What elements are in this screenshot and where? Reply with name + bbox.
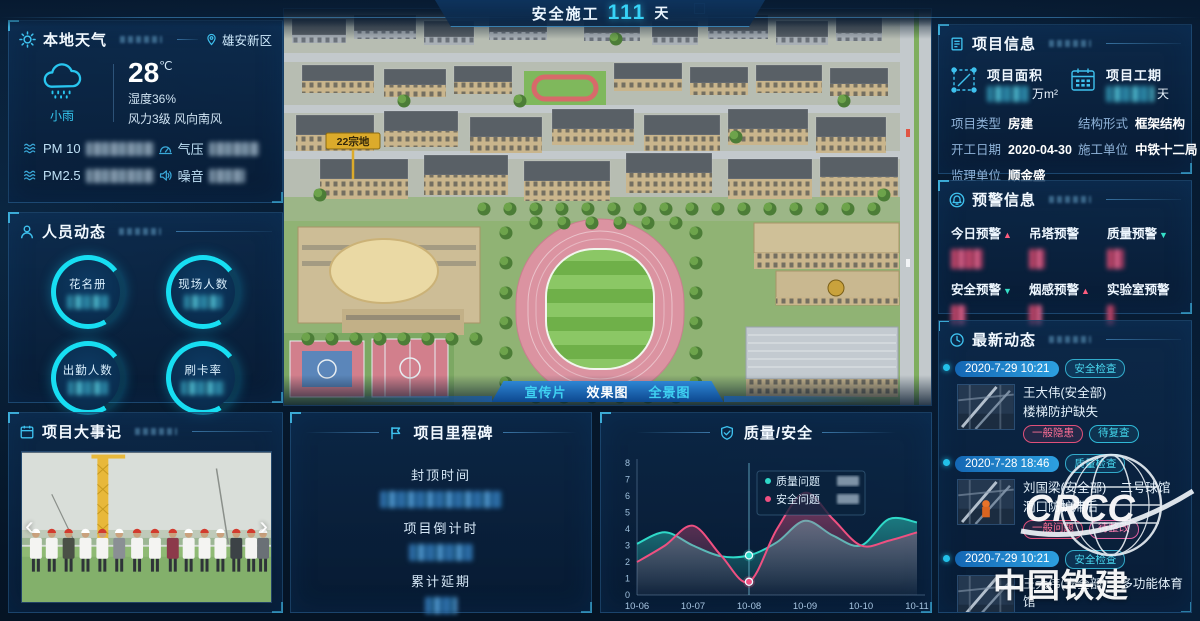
update-person: 刘国梁(安全部)二号球馆 [1023,479,1170,498]
milestone-title: 项目里程碑 [413,422,493,443]
metric-value-blurred [209,169,245,183]
svg-text:2: 2 [625,557,630,567]
stat-label: 花名册 [69,276,107,292]
flag-icon [388,425,404,441]
pressure-gauge-icon [158,141,173,156]
stat-value-blurred [1106,86,1154,102]
trend-up-icon: ▲ [1081,286,1090,296]
update-thumb-image [958,385,1014,429]
stat-unit: 万m² [1032,87,1058,101]
stat-circle-swipe-rate[interactable]: 刷卡率 [166,341,240,415]
svg-text:7: 7 [625,475,630,485]
milestone-value-blurred [425,597,457,614]
timeline-dot [943,364,950,371]
svg-text:22宗地: 22宗地 [337,135,370,148]
tab-promo-video[interactable]: 宣传片 [524,382,566,401]
stat-value-blurred [181,381,225,395]
update-date-badge: 2020-7-29 10:21 [955,551,1059,567]
top-bar: 安全施工 111 天 [0,0,1200,27]
warning-quality: 质量预警▼ [1107,223,1179,269]
tabbar-wing-right [724,396,874,402]
page-title: 安全施工 111 天 [435,0,765,27]
events-panel: 项目大事记 ‹ › [8,412,283,613]
sun-icon [19,31,36,48]
metric-label: 噪音 [178,166,204,185]
carousel-prev-button[interactable]: ‹ [25,513,34,539]
update-desc: 洞口防护滞后 [1023,498,1170,517]
personnel-panel: 人员动态 花名册 现场人数 出勤人数 刷卡率 [8,212,283,403]
milestone-value-blurred [380,491,502,508]
trend-up-icon: ▲ [1003,230,1012,240]
warnings-title: 预警信息 [972,189,1036,210]
warning-crane: 吊塔预警 [1029,223,1101,269]
update-location: 多功能体育馆 [1023,577,1183,610]
shield-check-icon [719,425,735,441]
stat-project-area: 项目面积 万m² [949,65,1062,103]
dashboard: 安全施工 111 天 [0,0,1200,621]
warning-today: 今日预警▲ [951,223,1023,269]
stat-value-blurred [184,295,222,309]
svg-text:10-07: 10-07 [681,601,705,612]
weather-panel: 本地天气 雄安新区 小雨 28℃ 湿度36% 风力3级 风向南风 [8,20,283,203]
title-unit: 天 [654,3,668,23]
trend-down-icon: ▼ [1159,230,1168,240]
stat-value-blurred [68,381,108,395]
stat-project-duration: 项目工期 天 [1068,65,1181,103]
milestone-label: 封顶时间 [411,465,471,484]
milestone-label: 累计延期 [411,571,471,590]
svg-text:4: 4 [625,524,630,534]
stat-value-blurred [987,86,1029,102]
update-desc: 楼梯防护缺失 [1023,403,1139,422]
update-type-badge: 安全检查 [1065,359,1125,378]
rain-cloud-icon [39,62,85,100]
person-icon [19,224,35,240]
update-photo[interactable] [957,575,1015,614]
warning-value-blurred [1029,249,1045,269]
svg-text:10-09: 10-09 [793,601,817,612]
carousel-next-button[interactable]: › [259,513,268,539]
updates-title: 最新动态 [972,329,1036,350]
svg-text:质量问题: 质量问题 [776,475,820,488]
view-tabs: 宣传片 效果图 全景图 [492,381,724,402]
update-person: 王大伟(安全部) [1023,384,1139,403]
location-link[interactable]: 雄安新区 [205,30,272,49]
update-thumb-image [958,480,1014,524]
updates-list: 2020-7-29 10:21 安全检查 王大伟(安全部) 楼梯防护缺失 一般隐… [939,355,1191,613]
project-3d-view[interactable]: 22宗地 宣传片 效果图 全景图 [283,8,932,406]
stat-label: 项目面积 [987,68,1043,83]
update-tag: 一般问题 [1023,520,1083,539]
timeline-dot [943,555,950,562]
field-start-date: 开工日期2020-04-30 [951,139,1072,158]
document-icon [949,36,965,52]
chart-title: 质量/安全 [744,422,813,443]
pm-icon [23,141,38,156]
event-photo[interactable]: ‹ › [21,451,272,603]
stat-unit: 天 [1157,87,1169,101]
update-person: 王大伟(安全部)多功能体育馆 [1023,575,1183,613]
svg-text:10-10: 10-10 [849,601,873,612]
svg-text:8: 8 [625,458,630,468]
calendar-icon [1068,65,1098,95]
updates-panel: 最新动态 2020-7-29 10:21 安全检查 王大伟(安全部) 楼梯防护缺… [938,320,1192,613]
warning-value-blurred [1107,249,1124,269]
field-contractor: 施工单位中铁十二局 [1078,139,1198,158]
stat-circle-roster[interactable]: 花名册 [51,255,125,329]
update-tag: 待整改 [1089,520,1139,539]
speaker-icon [158,168,173,183]
tab-rendering[interactable]: 效果图 [586,382,628,401]
update-date-badge: 2020-7-29 10:21 [955,361,1059,377]
group-photo [22,452,272,603]
svg-text:6: 6 [625,491,630,501]
update-entry[interactable]: 2020-7-29 10:21 安全检查 王大伟(安全部) 楼梯防护缺失 一般隐… [955,359,1183,443]
tabbar-wing-left [342,396,492,402]
calendar-icon [19,424,35,440]
title-prefix: 安全施工 [532,3,600,24]
milestone-value-blurred [409,544,473,561]
aerial-render: 22宗地 [284,9,931,405]
tab-panorama[interactable]: 全景图 [649,382,691,401]
svg-text:1: 1 [625,574,630,584]
quality-safety-panel: 质量/安全 01234567810-0610-0710-0810-0910-10… [600,412,932,613]
update-entry[interactable]: 2020-7-28 18:46 质量检查 刘国梁(安全部)二号球馆 洞口防护滞后… [955,454,1183,538]
warnings-panel: 预警信息 今日预警▲ 吊塔预警 质量预警▼ 安全预警▼ 烟感预警▲ 实验室预警 [938,180,1192,314]
metric-label: PM2.5 [43,168,81,183]
update-photo[interactable] [957,384,1015,430]
update-thumb-image [958,576,1014,614]
milestone-panel: 项目里程碑 封顶时间 项目倒计时 累计延期 [290,412,592,613]
area-measure-icon [949,65,979,95]
update-type-badge: 质量检查 [1065,454,1125,473]
timeline-dot [943,459,950,466]
svg-text:安全问题: 安全问题 [776,492,820,506]
warning-safety: 安全预警▼ [951,279,1023,325]
svg-text:10-06: 10-06 [625,601,649,612]
stat-label: 项目工期 [1106,68,1162,83]
warning-value-blurred [951,249,983,269]
personnel-title: 人员动态 [42,221,106,242]
quality-safety-chart[interactable]: 01234567810-0610-0710-0810-0910-1010-11质… [601,447,931,619]
milestone-label: 项目倒计时 [403,518,478,537]
update-photo[interactable] [957,479,1015,525]
svg-text:5: 5 [625,508,630,518]
clock-icon [949,332,965,348]
trend-down-icon: ▼ [1003,286,1012,296]
temperature-value: 28 [128,57,159,88]
alarm-bell-icon [949,192,965,208]
wind: 风力3级 风向南风 [128,110,222,127]
stat-label: 刷卡率 [185,362,223,378]
weather-condition: 小雨 [25,107,99,124]
update-type-badge: 安全检查 [1065,550,1125,569]
update-entry[interactable]: 2020-7-29 10:21 安全检查 王大伟(安全部)多功能体育馆 楼梯防护… [955,550,1183,614]
svg-text:10-11: 10-11 [905,601,929,612]
update-desc: 楼梯防护缺失 [1023,612,1183,613]
warning-smoke: 烟感预警▲ [1029,279,1101,325]
stat-circle-attendance[interactable]: 出勤人数 [51,341,125,415]
warning-lab: 实验室预警 [1107,279,1179,325]
metric-value-blurred [86,169,154,183]
temperature-unit: ℃ [159,59,172,73]
weather-title: 本地天气 [43,29,107,50]
field-structure-form: 结构形式框架结构 [1078,113,1198,132]
svg-text:0: 0 [625,590,630,600]
metric-label: PM 10 [43,141,81,156]
stat-circle-onsite[interactable]: 现场人数 [166,255,240,329]
svg-text:10-08: 10-08 [737,601,761,612]
svg-text:3: 3 [625,541,630,551]
update-date-badge: 2020-7-28 18:46 [955,456,1059,472]
project-info-panel: 项目信息 项目面积 万m² 项目工期 天 项目类型房建 结构形式框架结构 [938,24,1192,174]
header-decor [120,36,162,43]
project-info-title: 项目信息 [972,33,1036,54]
stat-label: 现场人数 [178,276,228,292]
metric-value-blurred [86,142,154,156]
location-label: 雄安新区 [222,30,272,49]
update-tag: 待复查 [1089,425,1139,444]
days-count: 111 [608,1,647,25]
humidity: 湿度36% [128,90,222,107]
stat-value-blurred [67,295,109,309]
stat-label: 出勤人数 [63,362,113,378]
update-location: 二号球馆 [1120,481,1170,495]
map-pin-icon [205,33,218,46]
update-tag: 一般隐患 [1023,425,1083,444]
events-title: 项目大事记 [42,421,122,442]
metric-label: 气压 [178,139,204,158]
pm-icon [23,168,38,183]
metric-value-blurred [209,142,259,156]
field-project-type: 项目类型房建 [951,113,1072,132]
